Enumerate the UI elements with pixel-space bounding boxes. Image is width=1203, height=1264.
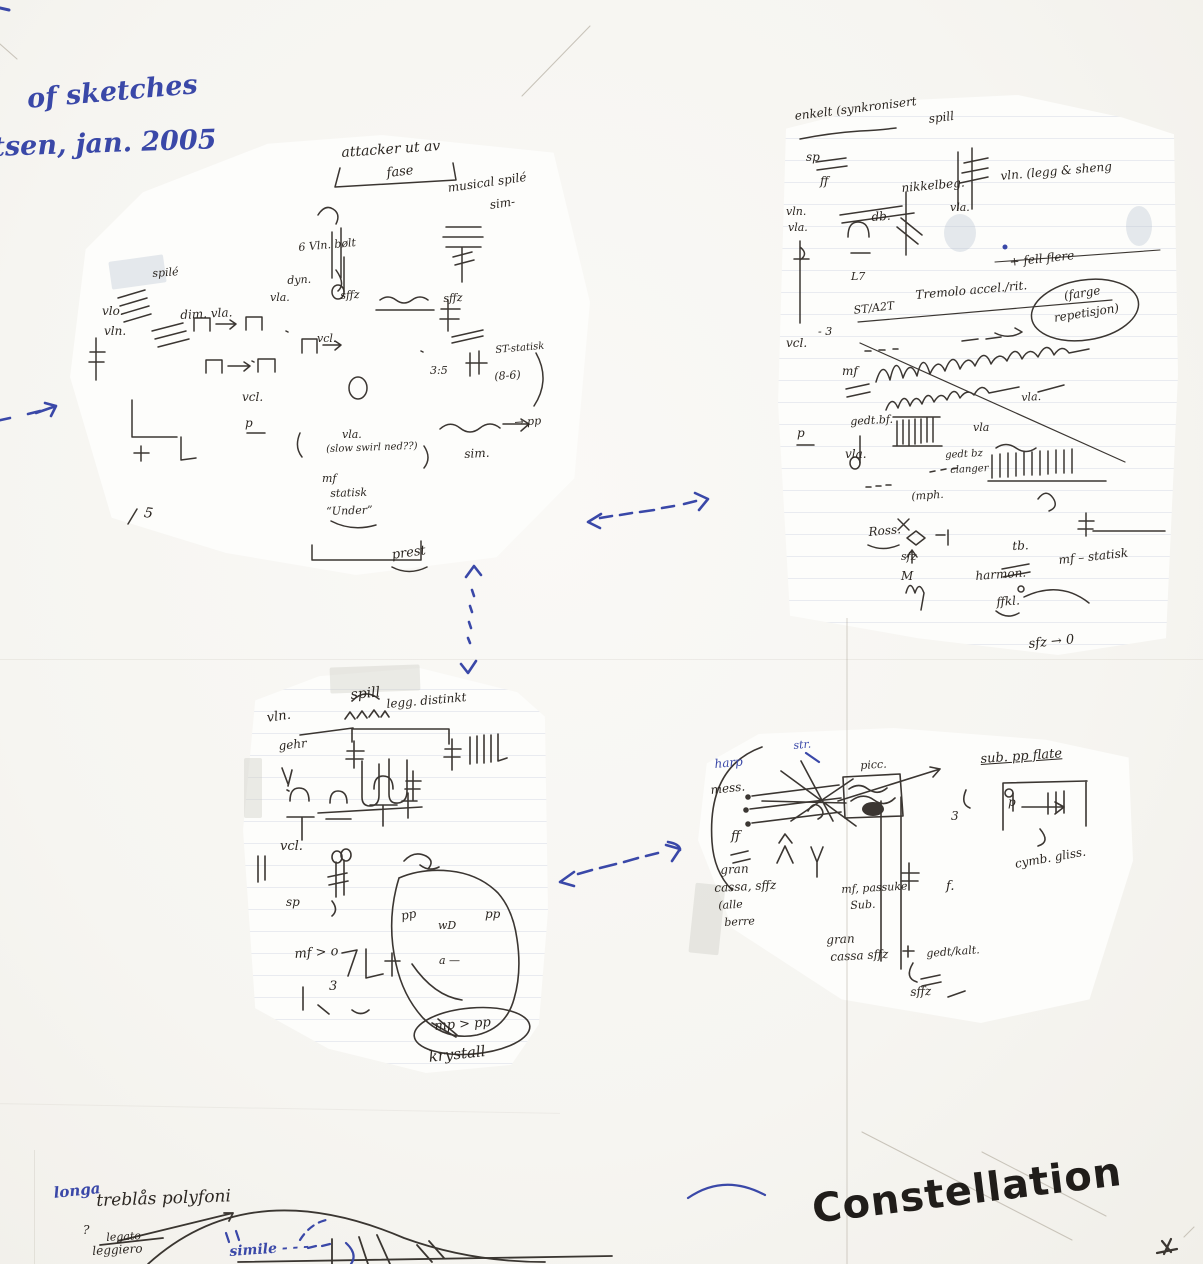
label-p: p xyxy=(245,417,253,429)
label-br-three: 3 xyxy=(951,810,959,822)
page-title-constellation: Constellation xyxy=(810,1152,1124,1230)
footer-leggiero: leggiero xyxy=(92,1242,143,1257)
label-under: “Under” xyxy=(326,504,373,517)
label-tr-gedt: gedt.bf. xyxy=(850,414,893,427)
label-bm-a-dash: a — xyxy=(439,955,460,966)
arrow-top-double-dashed-icon xyxy=(588,493,708,528)
label-statisk: statisk xyxy=(330,487,367,499)
label-pp: → pp xyxy=(514,415,541,428)
arrow-bottom-double-dashed-icon xyxy=(560,842,680,886)
paper-fragment-bottom-right xyxy=(698,728,1133,1023)
label-tr-vla3: vla. xyxy=(1021,391,1041,403)
label-tr-vla: vla. xyxy=(788,222,808,233)
label-vln: vln. xyxy=(104,325,126,337)
label-sffz1: sffz xyxy=(340,289,360,301)
label-br-f: f. xyxy=(946,880,954,893)
label-tr-vcl: vcl. xyxy=(786,337,807,349)
label-br-gran2: gran xyxy=(826,933,855,946)
label-tr-harmon: harmon. xyxy=(975,566,1026,582)
label-v86: (8-6) xyxy=(494,369,521,382)
label-sim-dash: sim- xyxy=(489,195,516,210)
label-br-p: p xyxy=(1008,796,1016,808)
footer-simile: simile - - - xyxy=(229,1239,309,1259)
label-vcl1: vcl. xyxy=(317,333,336,344)
label-br-cassa2: cassa sffz xyxy=(830,948,889,963)
label-fase: fase xyxy=(386,164,414,180)
label-vcl2: vcl. xyxy=(242,391,263,403)
label-vla1: vla. xyxy=(270,292,290,303)
label-tr-vln: vln. xyxy=(786,206,806,217)
label-bm-three: 3 xyxy=(329,980,337,993)
label-tr-tb: tb. xyxy=(1012,539,1029,552)
label-tr-spill: spill xyxy=(928,110,955,125)
label-bm-mp-pp: mp > pp xyxy=(434,1016,491,1033)
label-bm-pp2: pp xyxy=(485,908,500,920)
label-br-cassa1: cassa, sffz xyxy=(714,879,777,894)
label-br-gran1: gran xyxy=(720,863,749,876)
label-bm-vln: vln. xyxy=(266,709,292,725)
label-br-harp: harp xyxy=(714,756,743,770)
footer-question-mark: ? xyxy=(83,1224,89,1236)
label-five: 5 xyxy=(143,506,154,521)
label-tr-ffkl: ffkl. xyxy=(996,594,1020,608)
label-spile: spilé xyxy=(152,266,179,279)
ink-smudge xyxy=(944,214,976,252)
label-dim-vla: dim. vla. xyxy=(180,306,233,321)
label-tr-gedt2: gedt bz xyxy=(945,449,983,461)
footer-longa: longa xyxy=(53,1181,101,1201)
fold-crease xyxy=(0,659,1203,660)
arrow-left-dashed-icon xyxy=(0,403,56,421)
header-note-line1: of sketches xyxy=(26,71,199,113)
paper-edge xyxy=(34,1150,35,1264)
label-tr-p: p xyxy=(797,427,805,439)
label-tr-ff: ff xyxy=(820,175,829,187)
label-br-sffz: sffz xyxy=(910,985,932,998)
label-tr-l7: L7 xyxy=(851,271,865,282)
footer-treblas-polyfoni: treblås polyfoni xyxy=(96,1188,231,1210)
header-note-line2: tsen, jan. 2005 xyxy=(0,126,217,161)
fold-crease xyxy=(0,1103,560,1114)
label-tr-mf: mf xyxy=(842,365,858,377)
label-br-sub: Sub. xyxy=(850,899,876,911)
label-tr-ross: Ross. xyxy=(868,523,901,538)
label-tr-db: db. xyxy=(871,210,891,223)
label-bm-spill: spill xyxy=(350,685,381,702)
label-tr-m: M xyxy=(901,570,913,582)
label-bm-sp: sp xyxy=(286,896,300,908)
label-tr-sp: sp xyxy=(806,151,820,163)
label-bm-gehr: gehr xyxy=(278,737,307,752)
label-tr-sfz: sfz xyxy=(901,551,917,562)
arrow-vertical-double-dotted-icon xyxy=(461,566,481,673)
label-dyn: dyn. xyxy=(287,274,311,286)
label-mf: mf xyxy=(322,473,337,484)
label-sim: sim. xyxy=(464,447,490,460)
tape-mark xyxy=(244,758,262,818)
label-br-ff: ff xyxy=(731,830,740,843)
label-br-picc: picc. xyxy=(860,759,887,771)
label-sffz2: sffz xyxy=(443,292,463,304)
label-tr-clanger: clanger xyxy=(950,464,989,476)
label-br-gedt: gedt/kalt. xyxy=(926,944,980,959)
label-tr-mph: (mph. xyxy=(911,489,944,502)
paper-fragment-bottom-middle xyxy=(243,668,548,1073)
ink-smudge xyxy=(1126,206,1152,246)
label-br-mf-pass: mf, passuke xyxy=(841,881,908,895)
label-br-alle: (alle xyxy=(718,899,743,911)
label-bm-vcl: vcl. xyxy=(280,840,303,853)
label-tr-vla4: vla xyxy=(973,422,989,433)
label-bm-mf: mf > o xyxy=(294,945,339,961)
label-tr-minus3: - 3 xyxy=(818,326,832,337)
label-bm-wd: wD xyxy=(438,920,456,931)
label-vla2: vla. xyxy=(342,429,362,440)
label-vlo: vlo. xyxy=(102,305,123,317)
label-tr-vla-mid: vla. xyxy=(950,202,970,213)
scanned-sketch-page: of sketches tsen, jan. 2005 attacker ut … xyxy=(0,0,1203,1264)
label-ratio: 3:5 xyxy=(430,365,448,376)
label-br-str: str. xyxy=(793,738,812,750)
label-tr-vla5: vla. xyxy=(845,448,867,460)
label-bm-pp1: pp xyxy=(400,907,417,921)
label-br-mess: mess. xyxy=(710,780,746,796)
label-br-berre: berre xyxy=(724,915,755,928)
